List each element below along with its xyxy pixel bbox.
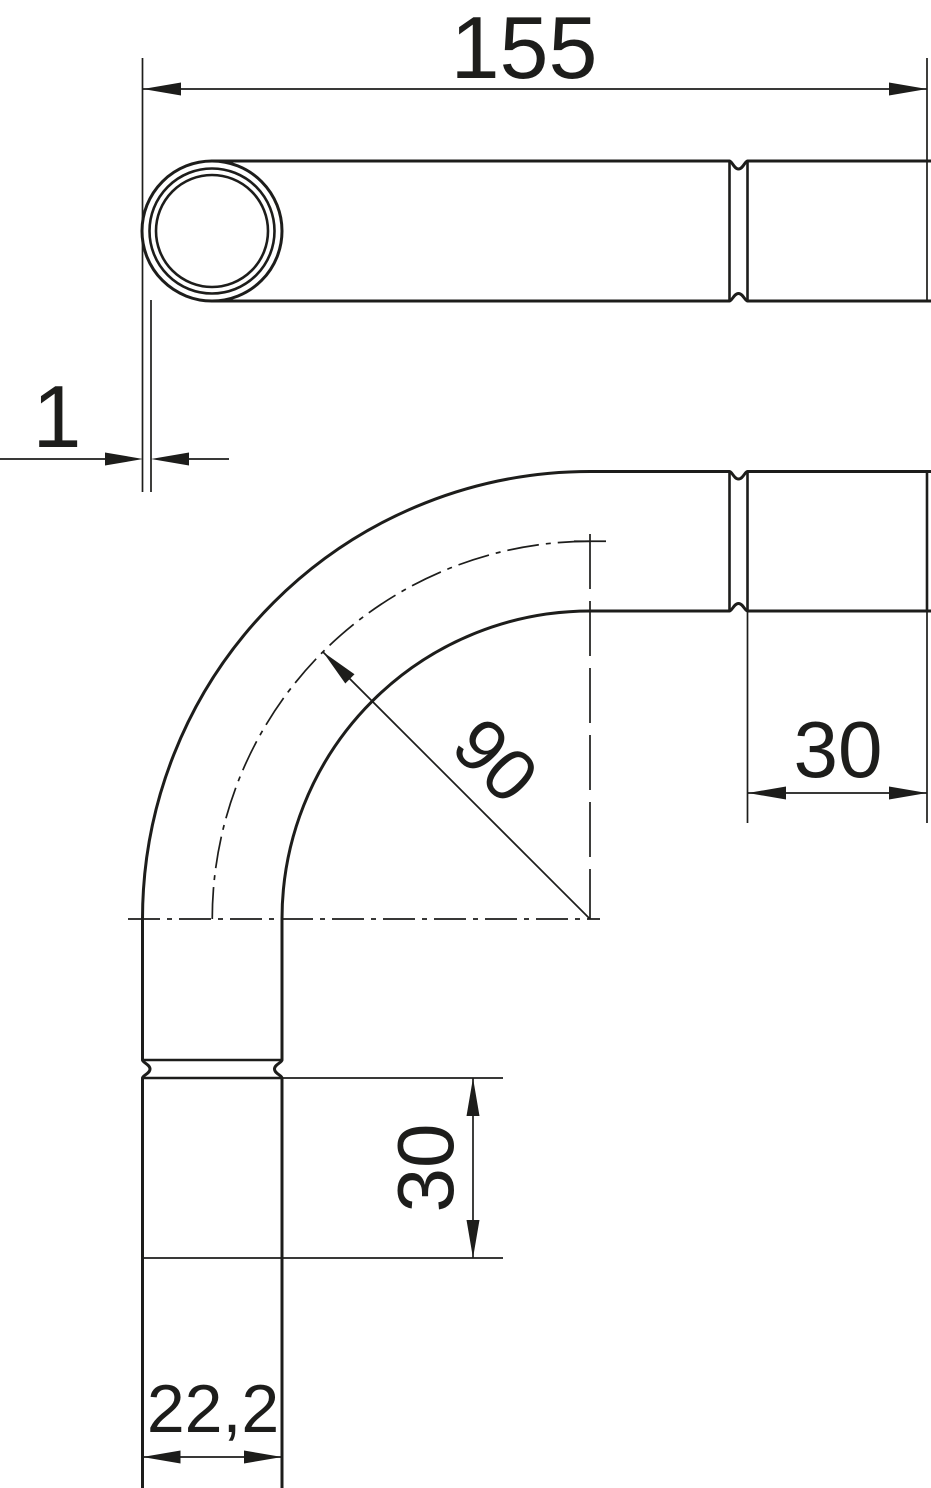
- horizontal-arm-top-edge: [590, 472, 931, 480]
- dimension-label-wall-thickness: 1: [33, 367, 82, 466]
- pipe-mouth-outer-circle: [142, 161, 282, 301]
- arrowhead-left: [143, 83, 181, 96]
- dimension-label-socket-vertical: 30: [381, 1124, 470, 1213]
- arrowhead-right: [889, 83, 927, 96]
- dimension-socket-horizontal: 30: [748, 611, 928, 823]
- pipe-mouth-middle-circle: [150, 169, 275, 294]
- arrowhead-left: [143, 1451, 181, 1464]
- arrowhead-right: [244, 1451, 282, 1464]
- technical-drawing-canvas: 155 1: [0, 0, 931, 1488]
- dimension-label-socket-horizontal: 30: [794, 705, 883, 794]
- arrowhead-bottom: [467, 1220, 480, 1258]
- dimension-label-overall-length: 155: [451, 0, 598, 97]
- pipe-mouth-inner-circle: [156, 175, 268, 287]
- straight-pipe-view: [142, 161, 931, 301]
- dimension-bend-radius: 90: [323, 652, 590, 919]
- dimension-socket-vertical: 30: [282, 1078, 503, 1258]
- pipe-top-edge: [212, 161, 931, 169]
- dimension-outer-diameter: 22,2: [143, 1371, 283, 1464]
- radius-line: [323, 652, 590, 919]
- radius-arrowhead: [323, 652, 355, 684]
- arrowhead-top: [467, 1078, 480, 1116]
- arrowhead-right: [889, 787, 927, 800]
- arrowhead-left: [748, 787, 786, 800]
- pipe-bottom-edge: [212, 294, 931, 302]
- arrowhead-pointing-right: [105, 453, 143, 466]
- dimension-wall-thickness: 1: [0, 300, 229, 492]
- dimension-label-bend-radius: 90: [437, 702, 554, 819]
- pipe-bend-drawing: 155 1: [0, 0, 931, 1488]
- dimension-overall-length: 155: [143, 0, 928, 492]
- arrowhead-pointing-left: [151, 453, 189, 466]
- dimension-label-outer-diameter: 22,2: [147, 1371, 279, 1447]
- horizontal-arm-bottom-edge: [590, 604, 931, 612]
- bend-view: [128, 472, 931, 1488]
